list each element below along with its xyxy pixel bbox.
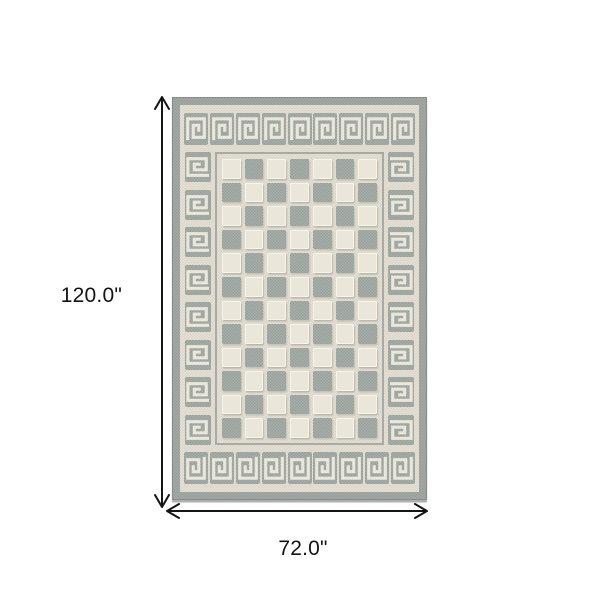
checker-cell-gray	[290, 206, 309, 226]
checker-cell-gray	[336, 348, 355, 368]
checker-cell-gray	[313, 324, 332, 344]
height-dimension-arrow	[150, 92, 174, 512]
greek-key-motif	[185, 302, 211, 332]
greek-key-motif	[339, 113, 363, 145]
rug-field	[215, 152, 384, 445]
checker-cell-gray	[358, 277, 377, 297]
checker-cell-cream	[336, 371, 355, 391]
checker-cell-gray	[290, 253, 309, 273]
checker-cell-cream	[336, 418, 355, 438]
checker-cell-cream	[267, 301, 286, 321]
width-dimension-arrow	[160, 499, 434, 523]
greek-key-motif	[391, 452, 415, 484]
greek-key-motif	[388, 265, 414, 295]
greek-key-motif	[262, 452, 286, 484]
greek-key-motif	[184, 113, 208, 145]
checker-cell-cream	[222, 348, 241, 368]
checker-cell-gray	[290, 301, 309, 321]
greek-key-motif	[185, 227, 211, 257]
greek-key-motif	[391, 113, 415, 145]
checker-cell-gray	[267, 324, 286, 344]
greek-key-motif	[185, 190, 211, 220]
checker-cell-cream	[336, 183, 355, 203]
height-dimension-label: 120.0"	[42, 285, 122, 306]
checker-cell-cream	[358, 253, 377, 273]
checker-cell-gray	[336, 301, 355, 321]
checker-cell-cream	[358, 206, 377, 226]
greek-key-motif	[365, 452, 389, 484]
checker-cell-cream	[313, 159, 332, 179]
checker-cell-gray	[336, 206, 355, 226]
checker-cell-gray	[313, 418, 332, 438]
checker-cell-cream	[222, 395, 241, 415]
greek-key-motif	[288, 452, 312, 484]
checker-cell-gray	[336, 253, 355, 273]
greek-key-motif	[365, 113, 389, 145]
greek-key-motif	[313, 113, 337, 145]
rug-image	[172, 97, 427, 500]
checker-cell-gray	[222, 371, 241, 391]
checker-cell-cream	[222, 301, 241, 321]
checker-cell-cream	[358, 348, 377, 368]
checker-cell-cream	[336, 277, 355, 297]
rug-border-left	[183, 150, 213, 447]
checker-cell-gray	[222, 418, 241, 438]
checker-cell-gray	[290, 348, 309, 368]
checker-cell-gray	[358, 183, 377, 203]
checker-cell-cream	[245, 324, 264, 344]
checker-cell-gray	[222, 183, 241, 203]
greek-key-motif	[388, 190, 414, 220]
greek-key-motif	[262, 113, 286, 145]
greek-key-motif	[388, 302, 414, 332]
checker-cell-cream	[245, 418, 264, 438]
checker-cell-gray	[290, 395, 309, 415]
checker-cell-gray	[222, 277, 241, 297]
checker-cell-gray	[245, 206, 264, 226]
checker-cell-cream	[336, 230, 355, 250]
checker-cell-cream	[267, 159, 286, 179]
greek-key-motif	[388, 152, 414, 182]
checker-cell-gray	[313, 277, 332, 297]
checker-cell-gray	[313, 371, 332, 391]
greek-key-motif	[388, 227, 414, 257]
checker-cell-cream	[336, 324, 355, 344]
greek-key-motif	[313, 452, 337, 484]
checker-cell-cream	[290, 371, 309, 391]
checker-cell-gray	[245, 159, 264, 179]
greek-key-motif	[185, 377, 211, 407]
checker-cell-cream	[245, 230, 264, 250]
rug-border-bottom	[183, 447, 416, 489]
checker-cell-cream	[313, 395, 332, 415]
checker-cell-gray	[290, 159, 309, 179]
checker-cell-cream	[267, 395, 286, 415]
greek-key-motif	[185, 265, 211, 295]
checker-cell-gray	[245, 301, 264, 321]
width-dimension-label: 72.0"	[260, 538, 346, 559]
checker-cell-cream	[358, 395, 377, 415]
greek-key-motif	[210, 113, 234, 145]
checker-cell-gray	[358, 230, 377, 250]
greek-key-motif	[185, 152, 211, 182]
checker-cell-cream	[222, 253, 241, 273]
checker-cell-cream	[313, 301, 332, 321]
checker-cell-gray	[267, 183, 286, 203]
greek-key-motif	[184, 452, 208, 484]
checker-cell-gray	[313, 183, 332, 203]
checker-cell-cream	[358, 159, 377, 179]
checker-cell-cream	[290, 418, 309, 438]
greek-key-motif	[388, 415, 414, 445]
greek-key-motif	[210, 452, 234, 484]
greek-key-motif	[185, 340, 211, 370]
greek-key-motif	[388, 340, 414, 370]
checker-cell-gray	[222, 324, 241, 344]
checker-cell-gray	[267, 277, 286, 297]
checker-cell-cream	[245, 371, 264, 391]
greek-key-motif	[288, 113, 312, 145]
greek-key-motif	[236, 113, 260, 145]
checker-cell-cream	[290, 230, 309, 250]
checker-cell-cream	[245, 277, 264, 297]
greek-key-motif	[339, 452, 363, 484]
greek-key-motif	[236, 452, 260, 484]
checker-cell-cream	[290, 277, 309, 297]
checker-cell-cream	[222, 206, 241, 226]
checker-cell-cream	[313, 253, 332, 273]
checker-cell-cream	[267, 348, 286, 368]
checker-cell-gray	[313, 230, 332, 250]
checker-cell-cream	[222, 159, 241, 179]
checker-cell-cream	[313, 348, 332, 368]
rug-inner-field	[180, 105, 419, 492]
greek-key-motif	[388, 377, 414, 407]
checker-cell-gray	[245, 253, 264, 273]
checker-cell-cream	[267, 253, 286, 273]
rug-border-right	[386, 150, 416, 447]
checker-cell-cream	[290, 324, 309, 344]
checker-cell-gray	[336, 395, 355, 415]
product-dimension-diagram: 120.0" 72.0"	[0, 0, 600, 600]
checker-cell-gray	[336, 159, 355, 179]
checker-cell-gray	[267, 418, 286, 438]
checker-cell-cream	[245, 183, 264, 203]
checker-cell-gray	[222, 230, 241, 250]
checker-cell-gray	[267, 230, 286, 250]
checker-cell-cream	[358, 301, 377, 321]
rug-middle	[183, 150, 416, 447]
checker-cell-gray	[358, 418, 377, 438]
checker-cell-gray	[267, 371, 286, 391]
greek-key-motif	[185, 415, 211, 445]
checker-cell-gray	[358, 371, 377, 391]
checker-cell-cream	[313, 206, 332, 226]
checker-cell-cream	[267, 206, 286, 226]
checker-cell-gray	[245, 348, 264, 368]
checker-cell-cream	[290, 183, 309, 203]
rug-border-top	[183, 108, 416, 150]
checker-cell-gray	[245, 395, 264, 415]
checker-cell-gray	[358, 324, 377, 344]
